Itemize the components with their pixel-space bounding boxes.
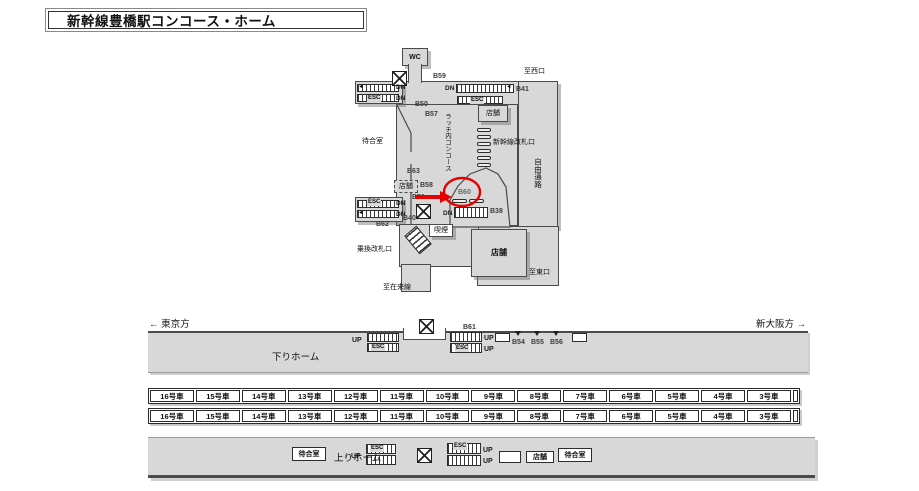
- car-cell: 12号車: [334, 410, 378, 422]
- ticket-gate-icon: [469, 199, 484, 203]
- wc-label: WC: [409, 54, 421, 61]
- car-cell: 6号車: [609, 410, 653, 422]
- up-label: UP: [352, 337, 362, 345]
- shinkansen-gate-label: 新幹線改札口: [493, 139, 535, 147]
- car-cell: 7号車: [563, 390, 607, 402]
- arrow-left-icon: ◄: [506, 85, 511, 91]
- smoking-room: 喫煙: [429, 224, 453, 237]
- elevator-icon: [417, 448, 432, 463]
- dn-label: DN: [396, 95, 405, 102]
- car-cell: 9号車: [471, 410, 515, 422]
- up-label: UP: [484, 346, 494, 354]
- to-west-exit-label: 至西口: [524, 68, 545, 76]
- car-cell: 7号車: [563, 410, 607, 422]
- car-cell: 15号車: [196, 410, 240, 422]
- car-cell: 16号車: [150, 410, 194, 422]
- elevator-icon: [419, 319, 434, 334]
- up-label: UP: [483, 447, 493, 455]
- ticket-gate-icon: [477, 142, 491, 146]
- car-cell: 14号車: [242, 390, 286, 402]
- platform-structure-box: [495, 333, 510, 342]
- car-cell: 6号車: [609, 390, 653, 402]
- free-passage-label: 自由通路: [534, 158, 542, 188]
- b57-label: B57: [425, 111, 438, 119]
- latch-concourse-label: ラッチ内コンコース: [443, 113, 450, 172]
- car-cell: 5号車: [655, 390, 699, 402]
- shop-box-label: 店舗: [533, 452, 547, 462]
- title-box: 新幹線豊橋駅コンコース・ホーム: [45, 8, 367, 32]
- station-map-screen: 新幹線豊橋駅コンコース・ホーム WC 店舗 店舗 店舗 喫煙: [0, 0, 919, 491]
- b51-label: B51: [412, 194, 425, 202]
- marker-triangle-icon: [553, 331, 559, 336]
- escalator-icon: [450, 332, 482, 342]
- car-cell: 8号車: [517, 410, 561, 422]
- down-platform-label: 下りホーム: [272, 349, 319, 363]
- page-title: 新幹線豊橋駅コンコース・ホーム: [49, 10, 276, 30]
- dn-label: DN: [443, 210, 452, 217]
- esc-label: ESC: [453, 443, 467, 450]
- car-cell: 12号車: [334, 390, 378, 402]
- b60-label: B60: [458, 189, 471, 197]
- car-cell: 16号車: [150, 390, 194, 402]
- b56-label: B56: [550, 339, 563, 347]
- ticket-gate-icon: [477, 163, 491, 167]
- car-cell: 4号車: [701, 390, 745, 402]
- waiting-room-box-label: 待合室: [299, 449, 320, 459]
- ticket-gate-icon: [477, 128, 491, 132]
- car-cell: 13号車: [288, 390, 332, 402]
- waiting-room-box: 待合室: [558, 448, 592, 462]
- car-row-end-cell: [793, 410, 798, 422]
- car-cell: 3号車: [747, 390, 791, 402]
- b50-label: B50: [415, 101, 428, 109]
- direction-tokyo-label: ← 東京方: [149, 316, 190, 330]
- b63-label: B63: [407, 168, 420, 176]
- waiting-room-box-label: 待合室: [565, 450, 586, 460]
- marker-triangle-icon: [515, 331, 521, 336]
- arrow-left-icon: ◄: [358, 211, 363, 217]
- car-number-row-up: 16号車15号車14号車13号車12号車11号車10号車9号車8号車7号車6号車…: [148, 408, 800, 424]
- car-cell: 3号車: [747, 410, 791, 422]
- dn-label: DN: [396, 84, 405, 91]
- car-cell: 9号車: [471, 390, 515, 402]
- escalator-icon: [367, 333, 399, 342]
- car-cell: 15号車: [196, 390, 240, 402]
- ticket-gate-icon: [452, 199, 467, 203]
- free-passage-corridor: [518, 81, 558, 228]
- up-label: UP: [483, 458, 493, 466]
- up-label: UP: [351, 453, 361, 461]
- smoking-label: 喫煙: [434, 227, 448, 234]
- platform-structure-box: [499, 451, 521, 463]
- elevator-icon: [416, 204, 431, 219]
- esc-label: ESC: [367, 95, 381, 102]
- wc-corridor: [408, 64, 422, 83]
- car-cell: 10号車: [426, 410, 470, 422]
- b59-label: B59: [433, 73, 446, 81]
- b40-label: B40: [403, 215, 416, 223]
- esc-label: ESC: [371, 344, 385, 351]
- car-cell: 13号車: [288, 410, 332, 422]
- direction-shin-osaka-label: 新大阪方 →: [756, 316, 806, 330]
- escalator-icon: [454, 207, 488, 218]
- platform-structure-box: [572, 333, 587, 342]
- title-box-inner: 新幹線豊橋駅コンコース・ホーム: [48, 11, 364, 29]
- b54-label: B54: [512, 339, 525, 347]
- up-label: UP: [484, 335, 494, 343]
- dn-label: DN: [445, 85, 454, 92]
- ticket-gate-icon: [477, 135, 491, 139]
- car-cell: 14号車: [242, 410, 286, 422]
- car-cell: 4号車: [701, 410, 745, 422]
- b55-label: B55: [531, 339, 544, 347]
- car-cell: 5号車: [655, 410, 699, 422]
- esc-label: ESC: [455, 345, 469, 352]
- waiting-room-label: 待合室: [362, 138, 383, 146]
- waiting-room-box: 待合室: [292, 447, 326, 461]
- shop-large-room: 店舗: [471, 229, 527, 277]
- b62-label: B62: [376, 221, 389, 229]
- esc-label: ESC: [470, 97, 484, 104]
- up-platform-strip: [148, 437, 815, 478]
- ticket-gate-icon: [477, 156, 491, 160]
- shop-box: 店舗: [526, 451, 554, 463]
- ticket-gate-icon: [477, 149, 491, 153]
- dn-label: DN: [396, 200, 405, 207]
- car-cell: 11号車: [380, 410, 424, 422]
- b58-label: B58: [420, 182, 433, 190]
- shop-kiosk-room: 店舗: [394, 180, 418, 193]
- car-cell: 11号車: [380, 390, 424, 402]
- car-number-row-down: 16号車15号車14号車13号車12号車11号車10号車9号車8号車7号車6号車…: [148, 388, 800, 404]
- shop-upper-room: 店舗: [478, 105, 508, 122]
- b61-label: B61: [463, 324, 476, 332]
- shop-kiosk-label: 店舗: [399, 183, 413, 190]
- marker-triangle-icon: [534, 331, 540, 336]
- shop-upper-label: 店舗: [486, 110, 500, 117]
- shop-large-label: 店舗: [491, 249, 507, 257]
- car-row-end-cell: [793, 390, 798, 402]
- to-east-exit-label: 至東口: [529, 269, 550, 277]
- esc-label: ESC: [367, 199, 381, 206]
- car-cell: 10号車: [426, 390, 470, 402]
- to-local-line-label: 至在来線: [383, 284, 411, 292]
- b38-label: B38: [490, 208, 503, 216]
- arrow-left-icon: ◄: [358, 85, 363, 91]
- transfer-gate-label: 乗換改札口: [357, 246, 392, 254]
- car-cell: 8号車: [517, 390, 561, 402]
- escalator-icon: [447, 455, 481, 466]
- b41-label: B41: [516, 86, 529, 94]
